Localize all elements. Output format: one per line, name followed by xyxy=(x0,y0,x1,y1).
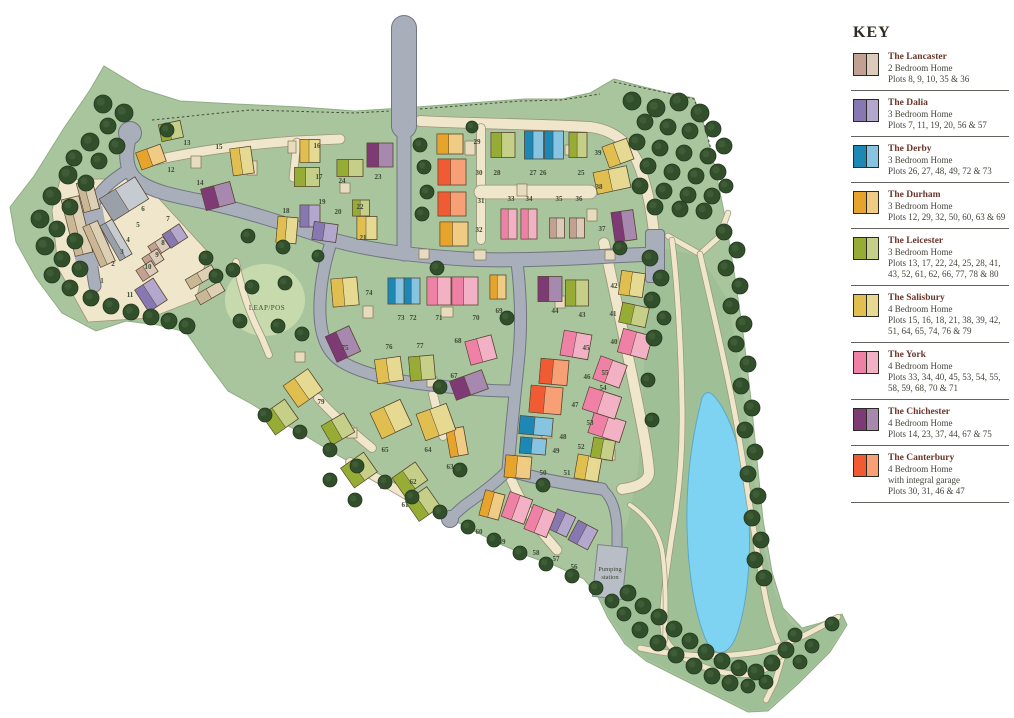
house-type-plots: Plots 12, 29, 32, 50, 60, 63 & 69 xyxy=(888,212,1005,223)
key-entry-text: The Durham3 Bedroom HomePlots 12, 29, 32… xyxy=(888,190,1005,223)
swatch-light xyxy=(867,191,880,214)
key-swatch-icon xyxy=(853,191,879,212)
plot-number-71: 71 xyxy=(436,314,444,322)
plot-house-15 xyxy=(230,146,255,176)
house-type-plots: Plots 8, 9, 10, 35 & 36 xyxy=(888,74,969,85)
plot-number-53: 53 xyxy=(587,419,595,427)
plot-house-31 xyxy=(438,192,466,216)
swatch-dark xyxy=(853,454,867,477)
key-entry-text: The Chichester4 Bedroom HomePlots 14, 23… xyxy=(888,407,992,440)
key-entry-the-chichester: The Chichester4 Bedroom HomePlots 14, 23… xyxy=(853,407,1011,440)
plot-house-36 xyxy=(570,218,585,238)
key-entry-text: The Salisbury4 Bedroom HomePlots 15, 16,… xyxy=(888,293,1011,337)
house-type-desc: 3 Bedroom Home xyxy=(888,247,1011,258)
house-type-name: The Lancaster xyxy=(888,52,969,63)
swatch-dark xyxy=(853,191,867,214)
plot-number-79: 79 xyxy=(318,398,326,406)
plot-number-6: 6 xyxy=(141,205,145,213)
plot-house-30 xyxy=(438,159,466,185)
plot-house-23 xyxy=(367,143,393,167)
plot-house-76 xyxy=(374,356,403,383)
plot-house-47 xyxy=(529,385,563,415)
masterplan-svg: 1234567891011121314151617181920212223242… xyxy=(0,0,850,718)
plot-number-75: 75 xyxy=(342,344,350,352)
plot-number-61: 61 xyxy=(402,501,410,509)
plot-number-66: 66 xyxy=(380,483,388,491)
plot-number-73: 73 xyxy=(398,314,406,322)
plot-number-34: 34 xyxy=(526,195,534,203)
plot-number-46: 46 xyxy=(584,373,592,381)
plot-number-76: 76 xyxy=(386,343,394,351)
plot-number-38: 38 xyxy=(596,183,604,191)
plot-number-63: 63 xyxy=(447,463,455,471)
plot-number-49: 49 xyxy=(553,447,561,455)
plot-number-62: 62 xyxy=(410,478,418,486)
plot-number-4: 4 xyxy=(126,236,130,244)
house-type-desc: 3 Bedroom Home xyxy=(888,201,1005,212)
plot-house-44 xyxy=(538,277,562,302)
key-swatch-icon xyxy=(853,408,879,429)
plot-number-59: 59 xyxy=(499,538,507,546)
swatch-light xyxy=(867,237,880,260)
plot-number-41: 41 xyxy=(610,310,618,318)
plot-number-8: 8 xyxy=(161,239,165,247)
plot-house-37 xyxy=(611,210,637,243)
plot-number-48: 48 xyxy=(560,433,568,441)
key-entry-the-leicester: The Leicester3 Bedroom HomePlots 13, 17,… xyxy=(853,236,1011,280)
plot-number-78: 78 xyxy=(326,444,334,452)
plot-number-16: 16 xyxy=(314,142,322,150)
key-entry-the-salisbury: The Salisbury4 Bedroom HomePlots 15, 16,… xyxy=(853,293,1011,337)
plot-number-1: 1 xyxy=(100,277,104,285)
house-type-desc: 4 Bedroom Home xyxy=(888,418,992,429)
plot-house-27 xyxy=(525,131,544,159)
house-type-name: The Leicester xyxy=(888,236,1011,247)
house-type-plots: Plots 30, 31, 46 & 47 xyxy=(888,486,965,497)
plot-number-35: 35 xyxy=(556,195,564,203)
key-entry-text: The Canterbury4 Bedroom Homewith integra… xyxy=(888,453,965,497)
plot-number-13: 13 xyxy=(184,139,192,147)
key-separator xyxy=(851,399,1009,400)
plot-house-43 xyxy=(566,280,589,306)
house-type-desc: 4 Bedroom Home xyxy=(888,304,1011,315)
house-type-desc: 3 Bedroom Home xyxy=(888,155,992,166)
plot-house-77 xyxy=(409,355,436,381)
house-type-desc: with integral garage xyxy=(888,475,965,486)
plot-number-36: 36 xyxy=(576,195,584,203)
key-entry-the-durham: The Durham3 Bedroom HomePlots 12, 29, 32… xyxy=(853,190,1011,223)
key-entry-text: The Lancaster2 Bedroom HomePlots 8, 9, 1… xyxy=(888,52,969,85)
plot-house-69 xyxy=(490,275,506,299)
plot-number-64: 64 xyxy=(425,446,433,454)
plot-house-46 xyxy=(539,358,569,385)
plot-house-33 xyxy=(501,209,517,239)
plot-number-44: 44 xyxy=(552,307,560,315)
plot-number-43: 43 xyxy=(579,311,587,319)
plot-number-37: 37 xyxy=(599,225,607,233)
plot-number-68: 68 xyxy=(455,337,463,345)
plot-number-12: 12 xyxy=(168,166,176,174)
plot-house-35 xyxy=(550,218,565,238)
plot-house-49 xyxy=(519,437,546,455)
plot-number-40: 40 xyxy=(611,338,619,346)
plot-number-14: 14 xyxy=(197,179,205,187)
plot-house-24 xyxy=(337,160,363,177)
plot-number-19: 19 xyxy=(319,198,327,206)
plot-number-60: 60 xyxy=(476,528,484,536)
plot-house-72 xyxy=(404,278,420,304)
swatch-dark xyxy=(853,294,867,317)
plot-number-80: 80 xyxy=(299,432,307,440)
plot-number-65: 65 xyxy=(382,446,390,454)
house-type-desc: 3 Bedroom Home xyxy=(888,109,987,120)
plot-number-22: 22 xyxy=(357,203,365,211)
swatch-light xyxy=(867,145,880,168)
key-swatch-icon xyxy=(853,53,879,74)
plot-house-73 xyxy=(388,278,404,304)
key-panel: KEY The Lancaster2 Bedroom HomePlots 8, … xyxy=(851,24,1011,503)
key-swatch-icon xyxy=(853,99,879,120)
plot-number-7: 7 xyxy=(166,215,170,223)
plot-number-54: 54 xyxy=(600,384,608,392)
key-swatch-icon xyxy=(853,351,879,372)
house-type-plots: Plots 13, 17, 22, 24, 25, 28, 41, 43, 52… xyxy=(888,258,1011,280)
plot-number-18: 18 xyxy=(283,207,291,215)
plot-number-56: 56 xyxy=(571,563,579,571)
key-entry-the-canterbury: The Canterbury4 Bedroom Homewith integra… xyxy=(853,453,1011,497)
swatch-dark xyxy=(853,53,867,76)
plot-house-18 xyxy=(276,216,298,244)
key-separator xyxy=(851,342,1009,343)
house-type-desc: 4 Bedroom Home xyxy=(888,361,1011,372)
plot-number-55: 55 xyxy=(602,369,610,377)
plot-number-29: 29 xyxy=(474,138,482,146)
key-entry-text: The York4 Bedroom HomePlots 33, 34, 40, … xyxy=(888,350,1011,394)
swatch-light xyxy=(867,99,880,122)
plot-number-74: 74 xyxy=(366,289,374,297)
plot-number-9: 9 xyxy=(155,251,159,259)
plot-house-26 xyxy=(545,131,564,159)
key-separator xyxy=(851,445,1009,446)
plot-number-27: 27 xyxy=(530,169,538,177)
key-entries: The Lancaster2 Bedroom HomePlots 8, 9, 1… xyxy=(851,52,1011,503)
plot-number-72: 72 xyxy=(410,314,418,322)
plot-number-77: 77 xyxy=(417,342,425,350)
plot-number-47: 47 xyxy=(572,401,580,409)
plot-number-2: 2 xyxy=(111,260,115,268)
leap-label: LEAP/POS xyxy=(249,304,285,312)
key-entry-the-york: The York4 Bedroom HomePlots 33, 34, 40, … xyxy=(853,350,1011,394)
plot-number-33: 33 xyxy=(508,195,516,203)
house-type-name: The Salisbury xyxy=(888,293,1011,304)
plot-house-74 xyxy=(331,277,359,307)
plot-number-57: 57 xyxy=(553,555,561,563)
house-type-plots: Plots 26, 27, 48, 49, 72 & 73 xyxy=(888,166,992,177)
swatch-dark xyxy=(853,351,867,374)
swatch-light xyxy=(867,294,880,317)
site-plan-map: 1234567891011121314151617181920212223242… xyxy=(0,0,850,718)
key-entry-the-derby: The Derby3 Bedroom HomePlots 26, 27, 48,… xyxy=(853,144,1011,177)
swatch-dark xyxy=(853,408,867,431)
plot-house-29 xyxy=(437,134,463,154)
plot-number-17: 17 xyxy=(316,173,324,181)
house-type-plots: Plots 7, 11, 19, 20, 56 & 57 xyxy=(888,120,987,131)
key-separator xyxy=(851,285,1009,286)
swatch-dark xyxy=(853,237,867,260)
key-separator xyxy=(851,502,1009,503)
plot-number-58: 58 xyxy=(533,549,541,557)
plot-number-30: 30 xyxy=(476,169,484,177)
house-type-plots: Plots 14, 23, 37, 44, 67 & 75 xyxy=(888,429,992,440)
plot-number-52: 52 xyxy=(578,443,586,451)
plot-number-25: 25 xyxy=(578,169,586,177)
plot-number-26: 26 xyxy=(540,169,548,177)
house-type-name: The Chichester xyxy=(888,407,992,418)
plot-number-69: 69 xyxy=(496,307,504,315)
key-entry-the-lancaster: The Lancaster2 Bedroom HomePlots 8, 9, 1… xyxy=(853,52,1011,85)
key-separator xyxy=(851,90,1009,91)
plot-house-70 xyxy=(452,277,478,305)
plot-number-39: 39 xyxy=(595,149,603,157)
plot-number-21: 21 xyxy=(360,234,368,242)
plot-number-45: 45 xyxy=(583,344,591,352)
house-type-plots: Plots 15, 16, 18, 21, 38, 39, 42, 51, 64… xyxy=(888,315,1011,337)
key-title: KEY xyxy=(853,24,1011,42)
plot-house-52 xyxy=(590,437,615,461)
plot-number-20: 20 xyxy=(335,208,343,216)
swatch-dark xyxy=(853,99,867,122)
plot-number-3: 3 xyxy=(120,248,124,256)
plot-number-15: 15 xyxy=(216,143,224,151)
key-entry-text: The Leicester3 Bedroom HomePlots 13, 17,… xyxy=(888,236,1011,280)
house-type-name: The Derby xyxy=(888,144,992,155)
plot-house-20 xyxy=(312,221,338,242)
plot-house-50 xyxy=(504,455,532,479)
house-type-name: The Dalia xyxy=(888,98,987,109)
key-separator xyxy=(851,136,1009,137)
plot-number-31: 31 xyxy=(478,197,486,205)
key-swatch-icon xyxy=(853,145,879,166)
plot-house-34 xyxy=(521,209,537,239)
plot-house-42 xyxy=(618,270,645,297)
swatch-dark xyxy=(853,145,867,168)
plot-house-25 xyxy=(569,133,587,158)
plot-number-51: 51 xyxy=(564,469,572,477)
plot-number-70: 70 xyxy=(473,314,481,322)
swatch-light xyxy=(867,454,880,477)
plot-number-32: 32 xyxy=(476,226,484,234)
house-type-name: The Canterbury xyxy=(888,453,965,464)
key-swatch-icon xyxy=(853,294,879,315)
key-entry-the-dalia: The Dalia3 Bedroom HomePlots 7, 11, 19, … xyxy=(853,98,1011,131)
house-type-name: The Durham xyxy=(888,190,1005,201)
key-separator xyxy=(851,228,1009,229)
house-type-name: The York xyxy=(888,350,1011,361)
pumping-station-label: Pumping xyxy=(598,566,622,573)
key-entry-text: The Dalia3 Bedroom HomePlots 7, 11, 19, … xyxy=(888,98,987,131)
plot-number-42: 42 xyxy=(611,282,619,290)
plot-number-23: 23 xyxy=(375,173,383,181)
house-type-desc: 2 Bedroom Home xyxy=(888,63,969,74)
plot-number-24: 24 xyxy=(339,177,347,185)
pumping-station-label2: station xyxy=(601,574,619,581)
swatch-light xyxy=(867,53,880,76)
house-type-plots: Plots 33, 34, 40, 45, 53, 54, 55, 58, 59… xyxy=(888,372,1011,394)
plot-house-32 xyxy=(440,222,468,246)
plot-number-5: 5 xyxy=(136,221,140,229)
plot-number-50: 50 xyxy=(540,469,548,477)
swatch-light xyxy=(867,408,880,431)
house-type-desc: 4 Bedroom Home xyxy=(888,464,965,475)
swatch-light xyxy=(867,351,880,374)
key-separator xyxy=(851,182,1009,183)
plot-number-67: 67 xyxy=(451,372,459,380)
plot-house-28 xyxy=(491,133,515,158)
key-swatch-icon xyxy=(853,454,879,475)
plot-house-48 xyxy=(519,416,553,437)
plot-number-28: 28 xyxy=(494,169,502,177)
key-entry-text: The Derby3 Bedroom HomePlots 26, 27, 48,… xyxy=(888,144,992,177)
plot-number-11: 11 xyxy=(127,291,134,299)
plot-house-71 xyxy=(427,277,451,305)
site-plan-page: 1234567891011121314151617181920212223242… xyxy=(0,0,1014,718)
plot-number-10: 10 xyxy=(145,263,153,271)
key-swatch-icon xyxy=(853,237,879,258)
